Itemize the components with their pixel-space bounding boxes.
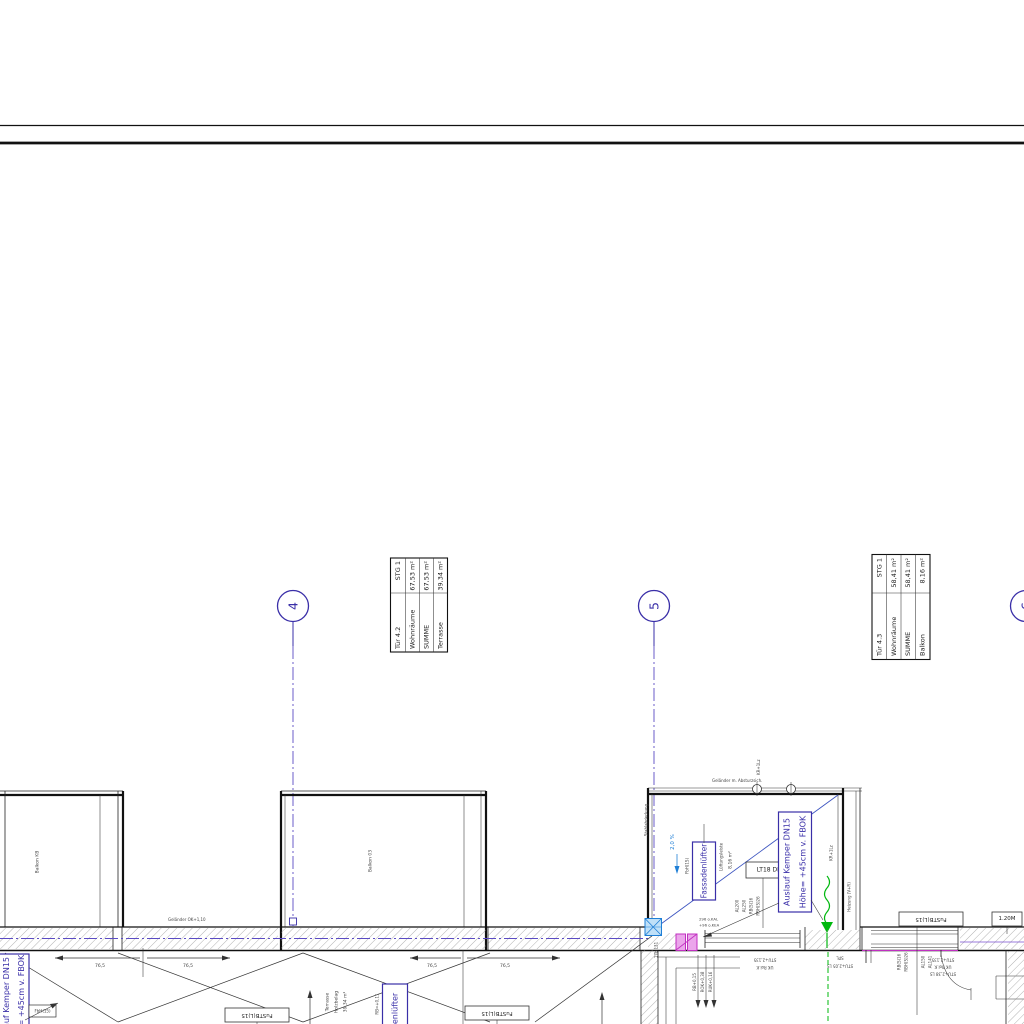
- center-interior: RB+0,15 ROK+0,38 RUK+0,16 STU+2,135 UK R…: [641, 950, 853, 1024]
- table-b-stg: STG 1: [875, 558, 883, 577]
- balcony-middle-label: Balkon 03: [368, 850, 374, 872]
- sheet-border-lines: [0, 126, 1024, 144]
- level-note-al250: AL250: [742, 899, 747, 912]
- vent-strip-note: Lüftungsleiste: [719, 842, 724, 871]
- grid-label-4: 4: [286, 602, 301, 610]
- floor-plan-drawing: 4 5 6 Tür 4.2 STG 1 Wohnräume 67,53 m² S…: [0, 0, 1024, 1024]
- table-a-terrasse-value: 39,34 m²: [437, 561, 445, 591]
- fassadenluefter-tag: Fassadenlüfter: [693, 842, 716, 900]
- down-arrow: [696, 1000, 701, 1008]
- dim-arrow-left: [55, 956, 63, 961]
- auslauf-line1: Auslauf Kemper DN15: [783, 818, 792, 906]
- lintel-note-2: UK Rol.K: [934, 965, 951, 970]
- fassadenluefter-label: Fassadenlüfter: [700, 843, 709, 899]
- magenta-element: [676, 934, 697, 951]
- fassadenluefter-bottom-label: Fassadenlüfter: [391, 992, 400, 1024]
- fustb-label: FuSTB(L)15: [915, 916, 947, 922]
- auslauf-left-line1: Auslauf Kemper DN15: [2, 957, 11, 1024]
- railing-note-band: Geländer OK+1,10: [168, 917, 206, 922]
- auslauf-line2: Höhe= +45cm v. FBOK: [799, 815, 808, 908]
- terrace-room: Geländer m. Absturzsich. KR+1Lz Stahlabd…: [644, 759, 863, 950]
- balcony-left-label: Balkon KB: [35, 851, 41, 874]
- table-a-room-door: Tür 4.2: [394, 627, 402, 650]
- dim-label-3: 76,5: [427, 963, 437, 969]
- lintel-note-3: STU+2,38 LS: [929, 972, 956, 977]
- cad-plan-viewport: 4 5 6 Tür 4.2 STG 1 Wohnräume 67,53 m² S…: [0, 0, 1024, 1024]
- lt18-label: LT18 DB: [757, 867, 781, 874]
- grid-axis-4: 4: [278, 591, 309, 927]
- slope-label: 2,0 %: [670, 834, 676, 850]
- auslauf-kemper-left-tag: Auslauf Kemper DN15 Höhe= +45cm v. FBOK …: [0, 954, 58, 1024]
- band-note-okal: 296 o.KAL: [699, 917, 719, 922]
- dim-label-1: 76,5: [95, 963, 105, 969]
- right-unit-interior: RB(S)16 RBH(S)26 AL150 AL141 STU+2,135 U…: [866, 950, 1024, 1024]
- table-a-summe-value: 67,53 m²: [423, 561, 431, 591]
- table-b-summe-value: 58,41 m²: [904, 558, 912, 588]
- table-b-balkon-label: Balkon: [919, 634, 927, 656]
- fustb-tag-a: FuSTB(L)15: [225, 1008, 289, 1024]
- level-note-rbhs26-r: RBH(S)26: [904, 952, 909, 972]
- table-b-wohnraeume-label: Wohnräume: [890, 617, 898, 656]
- terrasse-area-note: 39,34 m²: [343, 992, 349, 1013]
- table-a-terrasse-label: Terrasse: [437, 622, 445, 650]
- slope-arrow: [675, 866, 680, 874]
- down-arrow: [704, 1000, 709, 1008]
- axis-marker-square: [290, 918, 297, 925]
- table-b-room-door: Tür 4.3: [875, 634, 883, 657]
- rb-level-note: RB=+0,11: [375, 993, 380, 1015]
- level-note-rbs16: RB(S)16: [749, 897, 754, 914]
- lintel-note-c1: STU+2,135: [753, 958, 776, 963]
- level-note-rbs16-r: RB(S)16: [897, 953, 902, 970]
- table-b-balkon-value: 8,16 m²: [919, 558, 927, 584]
- auslauf-left-line2: Höhe= +45cm v. FBOK: [17, 954, 26, 1024]
- table-a-wohnraeume-label: Wohnräume: [409, 610, 417, 649]
- balcony-area-note: 8,16 m²: [728, 851, 734, 869]
- balcony-left: Balkon KB: [0, 791, 123, 927]
- kr-note: KR+1Lz: [756, 759, 761, 775]
- level-note-rb015: RB+0,15: [692, 973, 697, 991]
- fbh-note: FbH(1S): [685, 858, 690, 874]
- railing-note-top: Geländer m. Absturzsich.: [712, 778, 762, 783]
- dim-label-4: 76,5: [500, 963, 510, 969]
- fustb-label: FuSTB(L)15: [241, 1012, 273, 1018]
- balcony-middle: Balkon 03: [281, 791, 486, 950]
- table-b-summe-label: SUMME: [904, 632, 912, 656]
- room-table-b: Tür 4.3 STG 1 Wohnräume 58,41 m² SUMME 5…: [872, 555, 930, 660]
- down-arrow: [712, 1000, 717, 1008]
- grid-label-5: 5: [647, 602, 662, 610]
- table-a-summe-label: SUMME: [423, 625, 431, 649]
- table-a-wohnraeume-value: 67,53 m²: [409, 561, 417, 591]
- level-note-al200: AL200: [735, 899, 740, 912]
- wall-band: Geländer OK+1,10 296 o.KAL +96 o.KEA 17b…: [0, 917, 1024, 959]
- lintel-note-c2: UK Rol.K: [756, 965, 773, 970]
- steel-cover-note: Stahlabdeckung: [644, 803, 649, 836]
- level-note-rok038: ROK+0,38: [700, 971, 705, 992]
- lintel-note-1: STU+2,135: [931, 958, 954, 963]
- up-arrow: [600, 992, 605, 1000]
- room-table-a: Tür 4.2 STG 1 Wohnräume 67,53 m² SUMME 6…: [391, 558, 448, 652]
- leader-arrow: [703, 933, 712, 938]
- auslauf-kemper-tag: Auslauf Kemper DN15 Höhe= +45cm v. FBOK: [779, 812, 812, 912]
- band-note-okea: +96 o.KEA: [699, 923, 720, 928]
- table-b-wohnraeume-value: 58,41 m²: [890, 558, 898, 588]
- spl-note: SPL: [836, 956, 844, 961]
- fustb-tag-b: FuSTB(L)15: [465, 1006, 529, 1024]
- up-arrow: [308, 990, 313, 998]
- green-flex-pipe: [825, 876, 830, 924]
- dim-label-2: 76,5: [183, 963, 193, 969]
- terrasse-note: Terrasse: [325, 992, 331, 1012]
- level-note-al150: AL150: [921, 955, 926, 968]
- kr-note-2: KR+1Lz: [829, 845, 834, 861]
- blue-shaft-symbol: [645, 919, 662, 936]
- terrasse-finish-note: Holzbelag: [334, 991, 340, 1013]
- grid-axis-6-partial: 6: [1011, 591, 1024, 622]
- lintel-note-c3: STU+2,05 LS: [826, 964, 853, 969]
- fustb-label: FuSTB(L)15: [481, 1010, 513, 1016]
- grid-axis-5: 5: [639, 591, 670, 918]
- dim-arrow-right: [552, 956, 560, 961]
- level-note-ruk016: RUK+0,16: [708, 971, 713, 992]
- dim-arrow-left: [410, 956, 418, 961]
- tag-120-label: 1.20M: [999, 916, 1016, 922]
- dim-arrow-right: [222, 956, 230, 961]
- fassadenluefter-bottom-tag: Fassadenlüfter: [383, 984, 408, 1024]
- heizung-note: Heizung (V+R): [847, 882, 852, 912]
- table-a-stg: STG 1: [394, 561, 402, 580]
- grid-label-6: 6: [1019, 602, 1024, 610]
